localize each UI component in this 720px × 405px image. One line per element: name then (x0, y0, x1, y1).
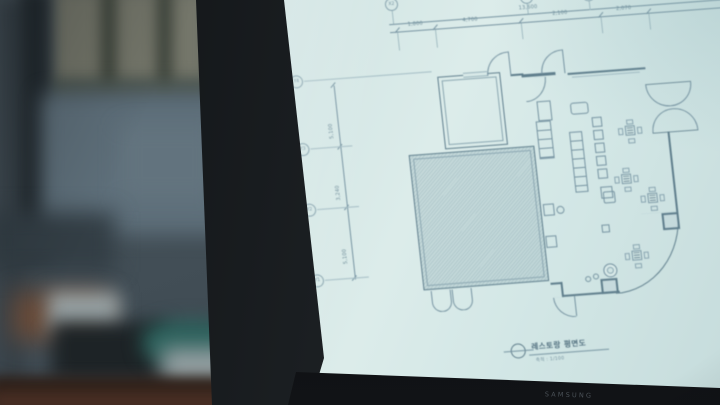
chair (624, 187, 632, 192)
window-mullion (102, 0, 115, 88)
room-upper-left-inner-wall (442, 76, 504, 145)
floor-drain (556, 206, 565, 215)
dim-extension-line (648, 14, 651, 30)
double-door-leaf-arc (431, 289, 453, 312)
dining-table-group (638, 186, 667, 212)
chair (635, 263, 643, 268)
dim-segment-text-vertical: 3,240 (332, 158, 343, 200)
table-label-smudge (649, 195, 656, 201)
hatched-room-inner-line (413, 150, 545, 286)
wall-right (667, 132, 678, 214)
door-swing-arc (485, 51, 510, 76)
door-swing-arc-interior (524, 77, 549, 103)
small-circle (593, 273, 600, 279)
chair (622, 168, 630, 173)
grid-bubble-stem (589, 1, 591, 10)
column (600, 278, 619, 294)
dining-table-group (623, 243, 652, 269)
chair (628, 138, 636, 143)
grid-bubble-stem (392, 11, 394, 24)
dim-extension-line (521, 23, 524, 39)
dim-segment-text: 2,070 (605, 4, 642, 13)
kitchen-equipment (597, 168, 608, 179)
kitchen-fixture (536, 100, 552, 121)
chair (648, 187, 656, 192)
chair (637, 127, 643, 134)
small-circle (585, 276, 592, 282)
chair (618, 128, 624, 135)
background-shadow (0, 212, 115, 272)
door-swing-arc (553, 296, 576, 318)
chair (633, 175, 639, 182)
kitchen-equipment (591, 117, 602, 128)
dim-segment-text: 2,100 (542, 9, 579, 18)
dim-extension-line (601, 17, 604, 33)
table-label-smudge (623, 176, 630, 182)
photo-scene: 13,600 1,800 4,700 2,100 2,070 X2 X3 X4 … (0, 0, 720, 405)
blurred-window (52, 0, 210, 88)
table-label-smudge (634, 252, 641, 258)
kitchen-equipment (570, 102, 589, 115)
chair (614, 176, 620, 183)
kitchen-shelf-stack (536, 120, 555, 159)
kitchen-counter (569, 131, 589, 193)
grid-line (310, 145, 352, 149)
floor-plan-drawing: 13,600 1,800 4,700 2,100 2,070 X2 X3 X4 … (270, 0, 720, 405)
column (661, 212, 680, 230)
dim-segment-text-vertical: 5,100 (339, 222, 350, 264)
entrance-door-lower-arc (650, 106, 699, 133)
corridor-fixture (545, 235, 557, 248)
window-mullion (158, 0, 171, 88)
kitchen-equipment (593, 130, 604, 141)
door-swing-arc (539, 49, 564, 74)
chair (626, 119, 634, 124)
grid-line (304, 71, 432, 82)
kitchen-equipment (596, 155, 607, 166)
chair (651, 206, 659, 211)
entrance-door-upper-arc (645, 81, 694, 108)
blurred-wall-highlight (120, 125, 215, 200)
grid-line (325, 276, 369, 280)
dim-segment-text-vertical: 5,100 (325, 97, 336, 139)
dining-table-group (612, 167, 641, 193)
kitchen-equipment (594, 142, 605, 153)
dim-segment-text: 1,800 (397, 19, 434, 28)
dim-extension-line (397, 33, 400, 51)
dim-segment-text: 4,700 (452, 15, 489, 24)
double-door-leaf-arc (452, 288, 474, 311)
chair (659, 194, 665, 201)
grid-bubble-label: X2 (388, 2, 394, 7)
table-label-smudge (627, 127, 634, 133)
chair (644, 251, 650, 258)
chair (625, 253, 631, 260)
drawing-scale-note: 축척 : 1/100 (536, 355, 565, 363)
grid-bubble-top: X2 (384, 0, 398, 11)
dining-table-group (616, 119, 645, 145)
dim-extension-line (435, 30, 438, 48)
grid-line (317, 206, 359, 210)
grid-bubble-label: Y4 (293, 79, 299, 84)
chair (640, 196, 646, 203)
chair (633, 244, 641, 249)
small-fixture (601, 224, 610, 233)
corridor-fixture (543, 203, 555, 216)
